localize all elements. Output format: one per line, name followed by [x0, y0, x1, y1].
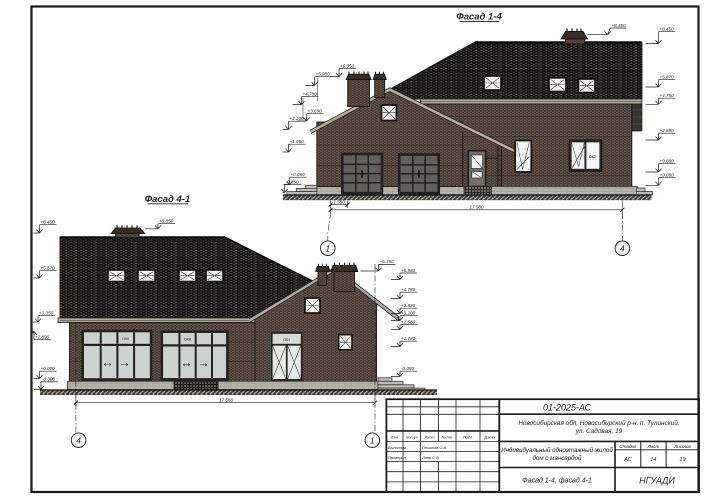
svg-text:+3.200: +3.200 [401, 311, 416, 316]
svg-text:+8.450: +8.450 [612, 23, 627, 28]
svg-text:14: 14 [650, 457, 656, 463]
svg-text:Новосибирская обл, Новосибирск: Новосибирская обл, Новосибирский р-н, п.… [518, 419, 680, 427]
svg-text:+1.780: +1.780 [401, 336, 416, 341]
svg-text:+6.350: +6.350 [380, 259, 395, 264]
svg-text:+2.680: +2.680 [660, 128, 675, 133]
svg-text:Лавр С.В.: Лавр С.В. [421, 455, 440, 460]
svg-text:ОК2: ОК2 [589, 155, 596, 159]
svg-text:+3.350: +3.350 [39, 311, 54, 316]
svg-text:19: 19 [679, 457, 685, 463]
svg-text:+8.450: +8.450 [660, 27, 675, 32]
svg-text:ул. Садовая, 19: ул. Садовая, 19 [575, 427, 623, 435]
svg-text:+8.450: +8.450 [41, 220, 56, 225]
svg-text:Фасад 1-4: Фасад 1-4 [456, 12, 502, 23]
svg-text:Выполнил: Выполнил [388, 445, 407, 450]
svg-text:Проверил: Проверил [388, 455, 407, 460]
svg-text:+6.350: +6.350 [340, 64, 355, 69]
svg-text:НГУАДИ: НГУАДИ [639, 476, 675, 486]
svg-text:Фасад 1-4, фасад 4-1: Фасад 1-4, фасад 4-1 [522, 477, 592, 485]
svg-text:Подп.: Подп. [463, 435, 473, 440]
svg-text:+0.880: +0.880 [660, 159, 675, 164]
svg-text:дом с мансардой: дом с мансардой [532, 455, 582, 462]
svg-text:-0.050: -0.050 [401, 366, 414, 371]
svg-text:01-2025-АС: 01-2025-АС [543, 403, 592, 413]
svg-text:Изм.: Изм. [391, 435, 399, 440]
svg-text:+5.980: +5.980 [316, 72, 331, 77]
svg-text:Листов: Листов [673, 444, 691, 449]
svg-text:+0.050: +0.050 [291, 172, 306, 177]
svg-text:1.550: 1.550 [333, 200, 345, 205]
svg-text:Лист: Лист [423, 435, 435, 440]
svg-text:+4.750: +4.750 [660, 93, 675, 98]
svg-text:+3.690: +3.690 [308, 109, 323, 114]
svg-text:АС: АС [623, 457, 632, 463]
svg-text:17 580: 17 580 [469, 204, 483, 209]
svg-text:+2.680: +2.680 [401, 320, 416, 325]
svg-text:Дата: Дата [483, 435, 495, 440]
svg-text:Индивидуальный одноэтажный жил: Индивидуальный одноэтажный жилой [501, 447, 613, 454]
svg-text:+5.980: +5.980 [401, 268, 416, 273]
svg-text:1: 1 [370, 435, 375, 445]
svg-text:+8.850: +8.850 [159, 219, 174, 224]
svg-text:+5.870: +5.870 [41, 266, 56, 271]
svg-text:4: 4 [76, 435, 81, 445]
svg-text:Стадия: Стадия [619, 444, 637, 449]
svg-text:+4.780: +4.780 [303, 92, 318, 97]
svg-text:+5.870: +5.870 [660, 75, 675, 80]
svg-text:+1.950: +1.950 [290, 139, 305, 144]
svg-text:17 580: 17 580 [219, 397, 233, 402]
svg-text:Кол.уч: Кол.уч [406, 435, 418, 440]
svg-text:+4.780: +4.780 [401, 287, 416, 292]
svg-text:1: 1 [325, 243, 330, 253]
svg-text:+2.890: +2.890 [35, 335, 50, 340]
svg-text:ОК4: ОК4 [283, 338, 290, 342]
svg-text:ОК8: ОК8 [122, 337, 129, 341]
svg-text:ОК8: ОК8 [184, 337, 191, 341]
svg-text:+3.200: +3.200 [290, 116, 305, 121]
svg-text:-0.350: -0.350 [286, 180, 299, 185]
svg-text:Лист: Лист [646, 444, 659, 449]
svg-text:4: 4 [620, 243, 625, 253]
svg-text:+0.000: +0.000 [41, 366, 56, 371]
svg-text:№док.: №док. [441, 435, 452, 440]
svg-text:-0.300: -0.300 [42, 377, 55, 382]
svg-text:+3.830: +3.830 [401, 303, 416, 308]
svg-text:+0.080: +0.080 [660, 173, 675, 178]
svg-text:Пешкова О.А.: Пешкова О.А. [422, 445, 447, 450]
